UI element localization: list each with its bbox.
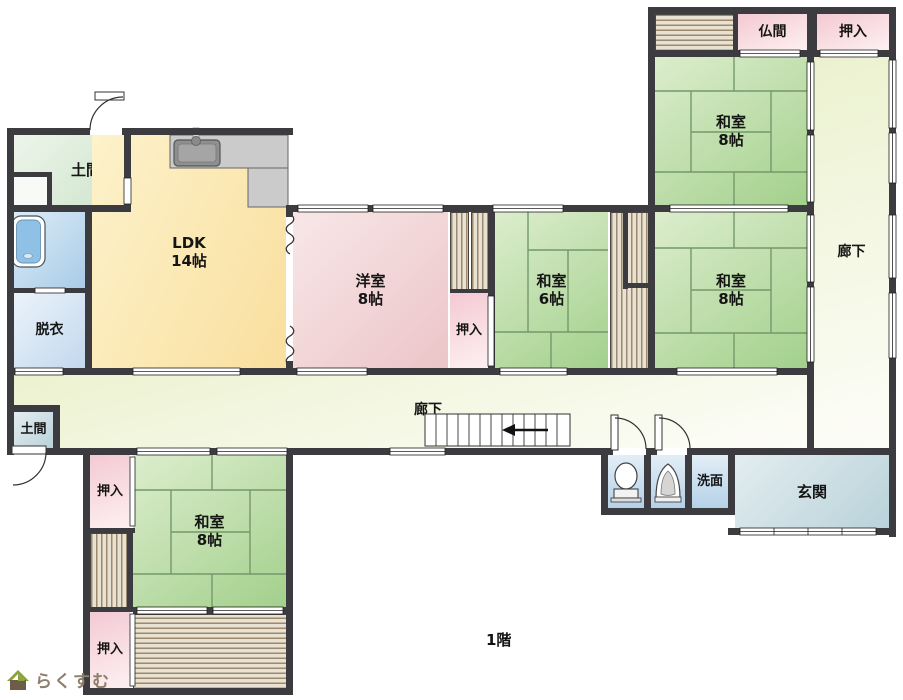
door-doma-small — [12, 446, 46, 485]
room-wc-urinal — [651, 455, 685, 508]
closet-stripe — [90, 533, 129, 609]
house-icon — [6, 668, 30, 692]
room-washitsu8-mid-right: 和室 8帖 — [655, 212, 807, 368]
room-size: 14帖 — [171, 252, 207, 270]
room-wc-toilet — [608, 455, 644, 508]
room-doma-small: 土間 — [14, 412, 53, 448]
logo: らくすむ — [6, 667, 111, 692]
floor-plan: 土間 LDK 14帖 脱衣 洋室 8帖 押入 和室 6帖 仏間 押入 和室 8帖… — [0, 0, 903, 700]
room-label: 脱衣 — [36, 322, 64, 339]
room-label: 和室 — [536, 272, 566, 290]
room-label: 玄関 — [797, 483, 827, 501]
room-label: 和室 — [716, 113, 746, 131]
room-size: 8帖 — [358, 290, 383, 308]
closet-stripe — [610, 212, 650, 370]
room-label: LDK — [172, 234, 206, 252]
closet-stripe — [471, 212, 490, 291]
room-oshiire-tr: 押入 — [817, 14, 889, 50]
room-label: 押入 — [97, 484, 123, 500]
room-washitsu6: 和室 6帖 — [495, 212, 608, 368]
closet-stripe — [655, 14, 735, 52]
room-washitsu8-top-right: 和室 8帖 — [655, 57, 807, 205]
room-label: 押入 — [456, 323, 482, 339]
corridor-label: 廊下 — [838, 244, 866, 261]
room-size: 8帖 — [718, 131, 743, 149]
floor-label: 1階 — [486, 629, 511, 650]
room-washitsu8-bottom-left: 和室 8帖 — [133, 455, 286, 607]
room-oshiire-mid: 押入 — [450, 293, 488, 368]
corridor-label: 廊下 — [414, 399, 442, 419]
room-label: 土間 — [20, 422, 46, 438]
room-ldk: LDK 14帖 — [92, 135, 286, 368]
room-label: 洗面 — [697, 474, 723, 490]
room-label: 押入 — [839, 24, 867, 41]
corridor-horizontal: 廊下 — [14, 375, 807, 448]
room-bath — [14, 212, 85, 288]
room-label: 和室 — [716, 272, 746, 290]
room-butsuma: 仏間 — [738, 14, 807, 50]
room-size: 6帖 — [539, 290, 564, 308]
veranda-stripe — [133, 614, 288, 690]
room-genkan: 玄関 — [735, 455, 889, 528]
room-size: 8帖 — [718, 290, 743, 308]
room-size: 8帖 — [197, 531, 222, 549]
room-label: 和室 — [194, 513, 224, 531]
room-label: 押入 — [97, 642, 123, 658]
room-oshiire-bl-top: 押入 — [90, 455, 130, 528]
room-label: 仏間 — [759, 24, 787, 41]
closet-stripe — [450, 212, 469, 291]
room-yoshitsu: 洋室 8帖 — [293, 212, 448, 368]
room-label: 洋室 — [355, 272, 385, 290]
door-doma-top — [90, 92, 124, 130]
corridor-vertical: 廊下 — [814, 57, 889, 448]
logo-text: らくすむ — [35, 667, 111, 692]
room-senmen: 洗面 — [692, 455, 728, 508]
room-datsui: 脱衣 — [14, 293, 85, 368]
doma-step-box — [14, 172, 52, 206]
